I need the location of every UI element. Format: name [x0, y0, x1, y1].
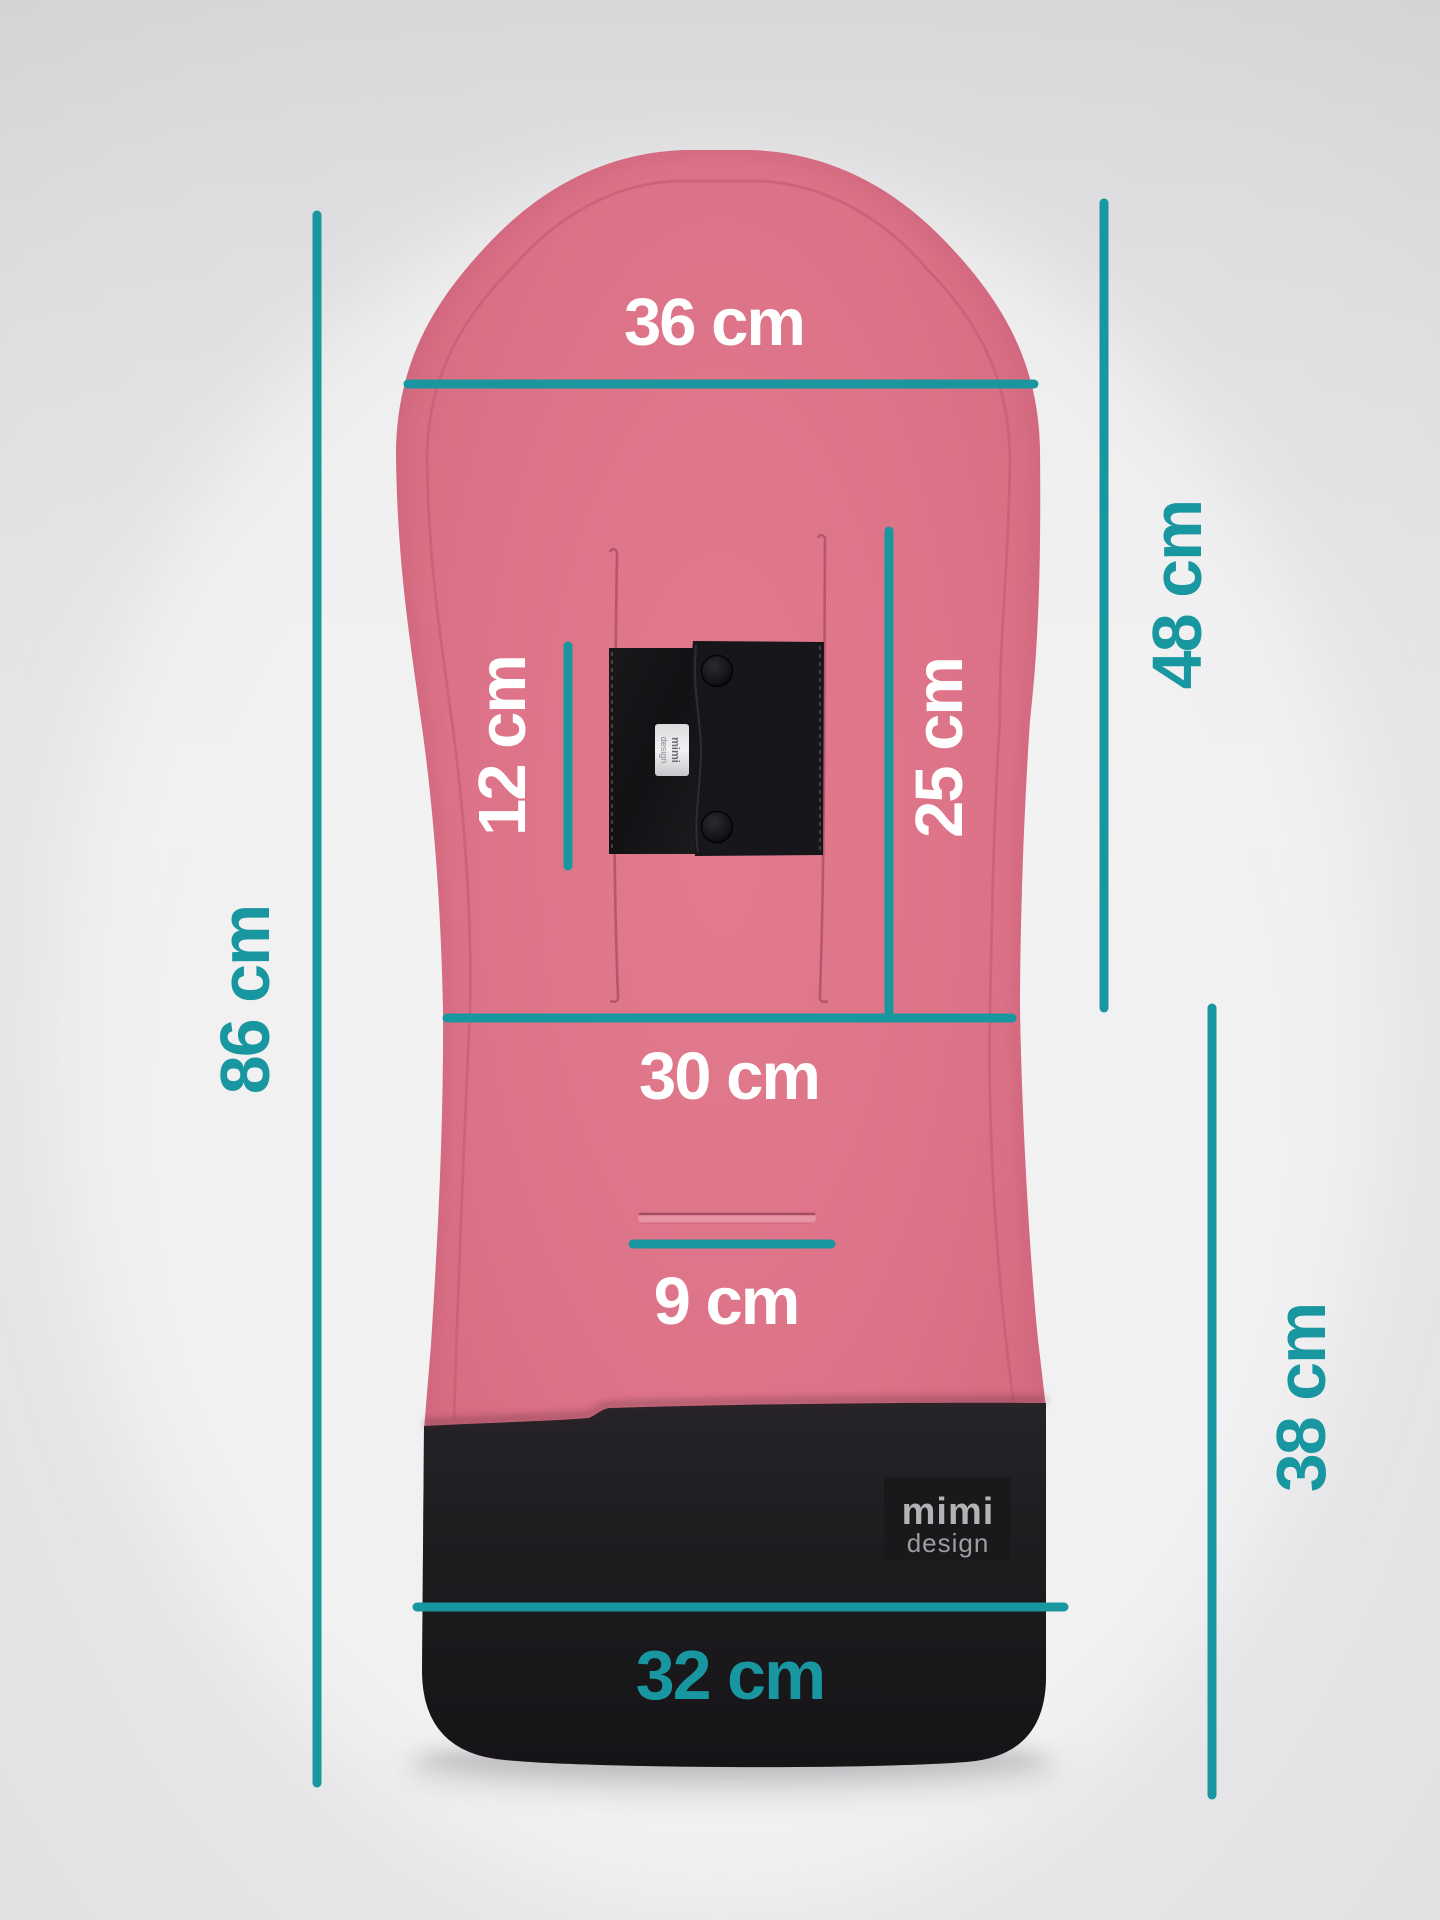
svg-text:design: design	[907, 1528, 990, 1558]
svg-text:9 cm: 9 cm	[654, 1264, 799, 1339]
svg-text:12 cm: 12 cm	[465, 656, 540, 836]
svg-text:86 cm: 86 cm	[206, 906, 284, 1094]
svg-text:36 cm: 36 cm	[624, 285, 804, 360]
svg-text:25 cm: 25 cm	[902, 658, 977, 838]
svg-text:32 cm: 32 cm	[636, 1636, 824, 1714]
svg-text:design: design	[659, 737, 669, 764]
svg-text:48 cm: 48 cm	[1138, 501, 1216, 689]
svg-text:30 cm: 30 cm	[639, 1039, 819, 1114]
svg-text:mimi: mimi	[902, 1491, 995, 1533]
svg-text:38 cm: 38 cm	[1262, 1304, 1340, 1492]
svg-text:mimi: mimi	[669, 737, 681, 763]
